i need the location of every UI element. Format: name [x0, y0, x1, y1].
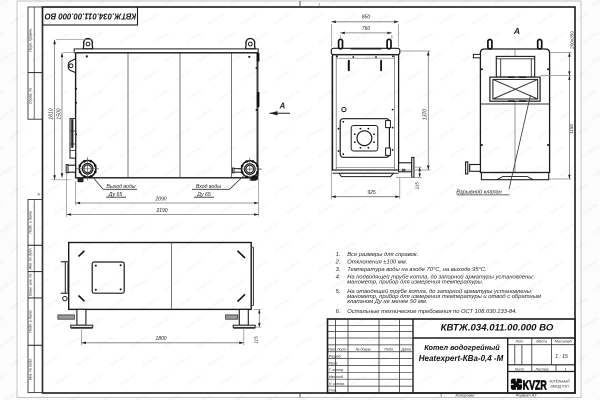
svg-text:Справ. №: Справ. №	[28, 88, 32, 104]
svg-text:1: 1	[440, 394, 442, 398]
svg-text:Масса: Масса	[536, 340, 547, 344]
svg-text:1800: 1800	[155, 336, 166, 342]
svg-text:Остальные технические требован: Остальные технические требования по ОСТ …	[347, 309, 517, 315]
svg-text:1500: 1500	[56, 108, 62, 119]
svg-text:Подп. и дата: Подп. и дата	[28, 310, 32, 333]
svg-text:Температура воды на входе 70°С: Температура воды на входе 70°С, на выход…	[347, 267, 487, 273]
svg-text:КВТЖ.034.011.00.000 ВО: КВТЖ.034.011.00.000 ВО	[441, 323, 554, 334]
svg-text:KVZR: KVZR	[523, 377, 547, 392]
svg-text:№ докум.: № докум.	[356, 347, 372, 351]
svg-text:5.: 5.	[336, 289, 341, 295]
svg-text:115: 115	[254, 336, 259, 344]
svg-text:760: 760	[362, 26, 371, 32]
svg-text:Взрывной клапан: Взрывной клапан	[456, 189, 501, 196]
svg-text:Изм: Изм	[328, 347, 335, 351]
svg-text:115: 115	[414, 182, 419, 190]
svg-text:манометр, прибор для измерения: манометр, прибор для измерения температу…	[347, 280, 483, 286]
svg-text:Формат А3: Формат А3	[516, 394, 538, 398]
svg-text:1.: 1.	[336, 252, 341, 258]
svg-text:ЗАВОД РЭП: ЗАВОД РЭП	[550, 385, 569, 389]
svg-text:2090: 2090	[154, 197, 166, 203]
svg-text:Т. контр.: Т. контр.	[329, 368, 345, 372]
svg-text:925: 925	[367, 190, 376, 196]
svg-text:2.: 2.	[335, 260, 341, 266]
svg-text:Разраб.: Разраб.	[329, 355, 342, 359]
svg-text:Инв. № дубл.: Инв. № дубл.	[28, 247, 32, 269]
svg-text:Утв.: Утв.	[329, 389, 337, 393]
svg-text:Взам. инв. №: Взам. инв. №	[28, 274, 32, 296]
svg-text:КОТЕЛЬНЫЙ: КОТЕЛЬНЫЙ	[549, 379, 570, 383]
svg-text:1370: 1370	[423, 109, 429, 120]
svg-text:Перв. примен.: Перв. примен.	[28, 28, 32, 52]
svg-text:Масштаб: Масштаб	[555, 340, 573, 344]
svg-text:Heatexpert-КВа-0,4 -М: Heatexpert-КВа-0,4 -М	[419, 354, 504, 363]
svg-text:А: А	[513, 26, 520, 36]
svg-text:клапаном Ду не менее 50 мм.: клапаном Ду не менее 50 мм.	[347, 299, 427, 305]
svg-text:1610: 1610	[49, 108, 55, 119]
svg-text:Нач.отд.: Нач.отд.	[329, 375, 344, 379]
svg-text:Лист: Лист	[336, 347, 346, 351]
svg-text:Все размеры для справок.: Все размеры для справок.	[347, 252, 418, 258]
svg-text:1: 1	[318, 1, 320, 6]
svg-text:Дата: Дата	[400, 347, 410, 351]
svg-text:Подп. и дата: Подп. и дата	[28, 211, 32, 234]
svg-text:Листов: Листов	[534, 367, 548, 371]
svg-text:200х350: 200х350	[570, 31, 575, 50]
svg-text:Выход воды: Выход воды	[106, 184, 135, 190]
svg-text:1: 1	[565, 367, 567, 371]
svg-text:Подп.: Подп.	[384, 347, 394, 351]
svg-text:КВТЖ.034.011.00.000 ВО: КВТЖ.034.011.00.000 ВО	[45, 11, 137, 20]
svg-text:4.: 4.	[336, 275, 341, 281]
svg-text:Н. контр.: Н. контр.	[329, 382, 345, 386]
svg-text:Лист: Лист	[514, 367, 524, 371]
svg-text:Инв. № подл.: Инв. № подл.	[28, 358, 32, 380]
svg-text:А: А	[279, 102, 286, 111]
svg-text:Отклонения ±100 мм.: Отклонения ±100 мм.	[347, 260, 407, 266]
svg-text:Котел водогрейный: Котел водогрейный	[424, 343, 500, 352]
svg-text:1150: 1150	[569, 124, 574, 134]
svg-text:3.: 3.	[336, 267, 341, 273]
svg-text:850: 850	[362, 15, 371, 21]
svg-text:Копировал: Копировал	[456, 394, 476, 398]
svg-text:6.: 6.	[336, 309, 341, 315]
svg-text:2190: 2190	[155, 208, 167, 214]
svg-text:1 : 15: 1 : 15	[555, 354, 568, 360]
svg-text:Лит.: Лит.	[514, 340, 523, 344]
svg-text:Вход воды: Вход воды	[196, 184, 221, 190]
svg-text:Пров.: Пров.	[329, 361, 338, 365]
